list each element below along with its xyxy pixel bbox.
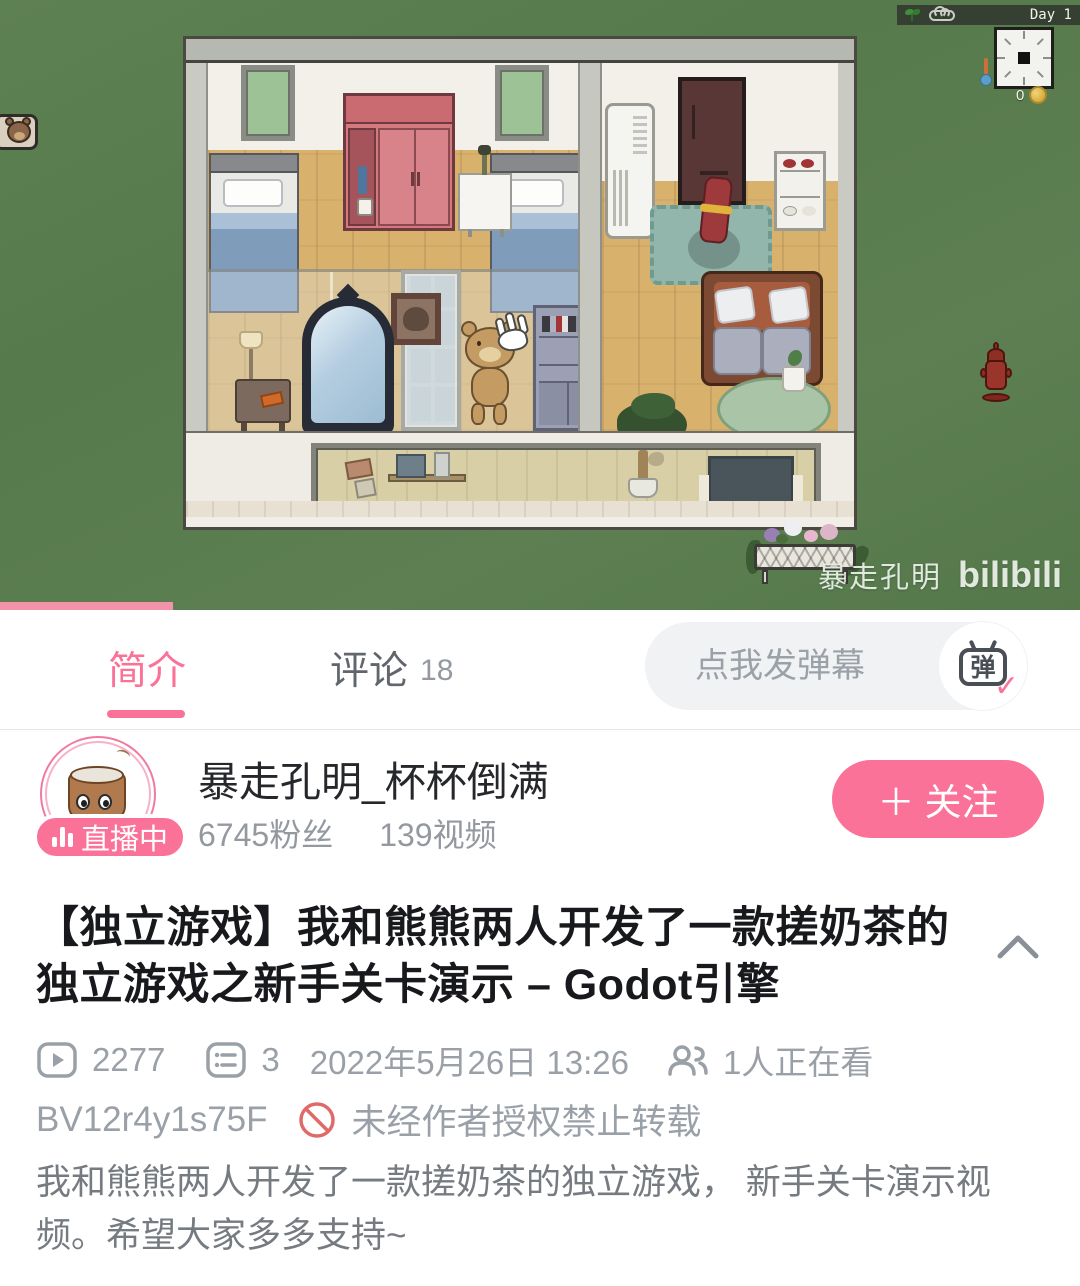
day-label: Day 1 [1030,7,1072,23]
video-title: 【独立游戏】我和熊熊两人开发了一款搓奶茶的独立游戏之新手关卡演示 – Godot… [36,900,984,1014]
play-count: 2277 [92,1041,165,1079]
clock-widget [994,27,1054,89]
bilibili-logo: bilibili [958,554,1062,596]
live-icon [52,827,73,847]
watching-icon [665,1041,711,1079]
danmaku-input-pill[interactable]: 弹 ✓ [645,622,1027,710]
gold-coin-icon [1029,86,1047,104]
video-description: 我和熊熊两人开发了一款搓奶茶的独立游戏， 新手关卡演示视频。希望大家多多支持~ [36,1156,1048,1262]
danmaku-input[interactable] [695,622,925,710]
publish-date: 2022年5月26日 13:26 [310,1036,629,1084]
copyright-notice: 未经作者授权禁止转载 [352,1094,702,1145]
house-roof [186,39,854,63]
danmaku-check-icon: ✓ [994,672,1019,702]
room-divider-wall [578,63,602,431]
watching-count: 1人正在看 [723,1036,873,1084]
bedside-table [235,357,291,431]
tall-potted-plant [626,462,660,496]
progress-fill [0,602,173,610]
wardrobe [343,93,455,231]
bvid: BV12r4y1s75F [36,1100,268,1140]
tab-intro-underline [107,710,185,718]
uploader-name[interactable]: 暴走孔明_杯杯倒满 [198,748,549,808]
video-watermark: 暴走孔明 bilibili [818,554,1062,596]
coin-counter: 0 [1016,86,1047,104]
tab-bar: 简介 评论18 弹 ✓ [0,610,1080,730]
stool [345,458,374,480]
coin-count: 0 [1016,87,1024,104]
shoe-rack [774,151,826,231]
follow-button[interactable]: ＋ 关注 [832,760,1044,838]
desk-with-monitor [388,474,466,482]
bedroom [208,63,578,431]
live-badge[interactable]: 直播中 [33,814,187,860]
bilibili-video-page: Day 1 0 暴走孔明 bilibili 简介 [0,0,1080,1286]
air-conditioner [605,103,655,239]
tab-intro[interactable]: 简介 [108,640,186,696]
tab-comments-label: 评论 [330,650,408,693]
collapse-chevron-icon[interactable] [992,928,1044,968]
tab-comments-count: 18 [420,654,453,687]
play-count-icon [36,1041,78,1079]
comment-count-icon [205,1041,247,1079]
video-meta-row: 2277 3 2022年5月26日 13:26 1人正在看 [36,1036,873,1084]
uploader-section: 直播中 暴走孔明_杯杯倒满 6745粉丝 139视频 ＋ 关注 [0,730,1080,900]
tab-comments[interactable]: 评论18 [330,640,453,696]
nightstand [458,173,512,231]
bear-avatar-icon [0,114,38,150]
danmaku-toggle-button[interactable]: 弹 ✓ [939,622,1027,710]
uploader-videos: 139视频 [379,810,496,856]
thermometer-icon [979,58,993,88]
cloud-icon [929,10,955,21]
window-right [495,65,549,141]
no-reprint-icon [296,1099,338,1141]
sprout-icon [905,9,919,21]
video-progress-bar[interactable] [0,602,1080,610]
window-left [241,65,295,141]
uploader-fans: 6745粉丝 [198,810,333,856]
hud-status-bar: Day 1 [897,5,1080,25]
fire-hydrant [982,344,1010,402]
follow-label: 关注 [925,772,999,826]
bv-row: BV12r4y1s75F 未经作者授权禁止转载 [36,1094,702,1145]
bear-picture-frame [391,293,441,345]
tv-screen [708,456,794,504]
plus-icon: ＋ [878,772,915,826]
living-room [602,63,838,431]
lower-floor [186,431,854,517]
bookshelf [533,305,578,431]
tile-walkway [186,501,854,517]
video-player[interactable]: Day 1 0 暴走孔明 bilibili [0,0,1080,610]
game-house [183,36,857,530]
comment-count: 3 [261,1041,279,1079]
live-badge-label: 直播中 [81,816,168,858]
standing-mirror [302,297,394,431]
watermark-uploader: 暴走孔明 [818,554,942,596]
uploader-stats: 6745粉丝 139视频 [198,810,497,856]
